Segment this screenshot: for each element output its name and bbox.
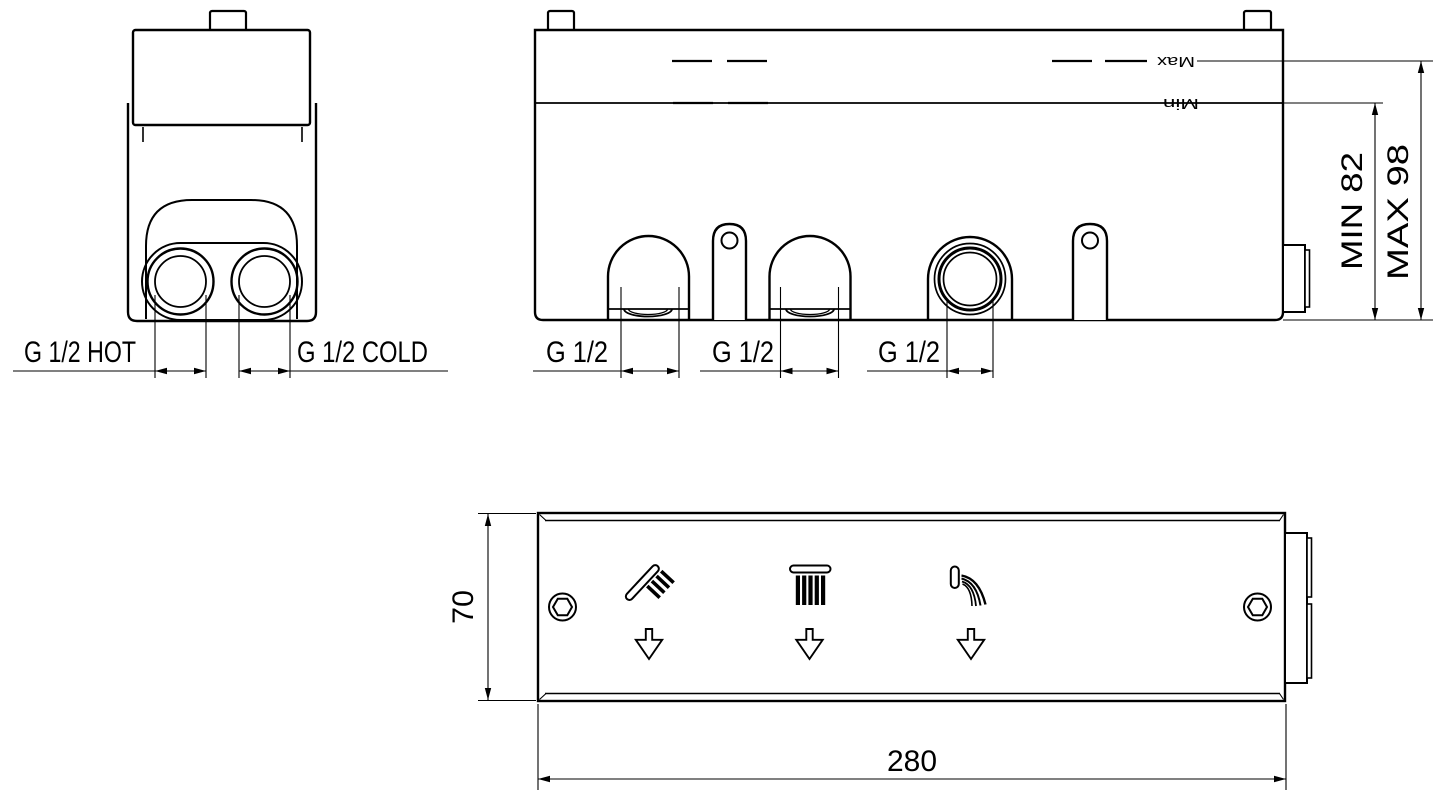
- hot-port-outer-circle: [148, 249, 214, 315]
- port3-label: G 1/2: [878, 336, 940, 369]
- arrowhead: [1372, 103, 1378, 115]
- arrowhead: [1274, 776, 1286, 782]
- arrowhead: [1372, 308, 1378, 320]
- height-dimension-lines: [478, 514, 536, 701]
- port2-label: G 1/2: [712, 336, 774, 369]
- arrowhead: [667, 368, 679, 374]
- arrowhead: [278, 368, 290, 374]
- side-connector-lip: [1305, 250, 1310, 307]
- panel-width-label: 280: [887, 745, 937, 778]
- side-connector: [1283, 245, 1305, 312]
- arrowhead: [538, 776, 550, 782]
- side-view-port-boss: [142, 243, 302, 320]
- arrowhead: [781, 368, 793, 374]
- min-depth-label: MIN 82: [1336, 152, 1369, 270]
- arrowhead: [621, 368, 633, 374]
- arrowhead: [194, 368, 206, 374]
- arrowhead: [239, 368, 251, 374]
- rain-shower-icon: [790, 566, 831, 606]
- mounting-tab-2: [1073, 224, 1107, 320]
- spout-body: [951, 567, 959, 589]
- side-view: G 1/2 HOT G 1/2 COLD: [13, 11, 448, 378]
- drawing-canvas: G 1/2 HOT G 1/2 COLD Max Min: [0, 0, 1445, 800]
- panel-face: [538, 513, 1285, 701]
- port1-label: G 1/2: [546, 336, 608, 369]
- arrowhead: [981, 368, 993, 374]
- max-depth-label: MAX 98: [1382, 144, 1415, 280]
- arrowhead: [827, 368, 839, 374]
- arrowhead: [155, 368, 167, 374]
- hot-port-label: G 1/2 HOT: [24, 336, 136, 369]
- cold-port-label: G 1/2 COLD: [297, 336, 428, 369]
- rain-shower-head: [790, 566, 831, 573]
- arrowhead: [1418, 61, 1424, 73]
- arrowhead: [485, 514, 491, 526]
- panel-side-connector: [1285, 533, 1307, 683]
- cold-port-inner-circle: [239, 256, 290, 307]
- front-view: Max Min MIN 82 MAX 98: [533, 11, 1433, 378]
- panel-view: 70 280: [447, 513, 1312, 790]
- max-marker-text: Max: [1156, 53, 1195, 70]
- mounting-tab-1: [713, 224, 746, 320]
- panel-height-label: 70: [447, 590, 480, 624]
- cold-port-outer-circle: [232, 249, 298, 315]
- hot-port-inner-circle: [155, 256, 206, 307]
- panel-connector-lip-top: [1307, 538, 1312, 597]
- technical-drawing-page: G 1/2 HOT G 1/2 COLD Max Min: [0, 0, 1445, 800]
- arrowhead: [485, 688, 491, 700]
- side-view-cap: [133, 30, 310, 125]
- side-view-extension-lines: [155, 295, 290, 378]
- arrowhead: [1418, 308, 1424, 320]
- min-marker-text: Min: [1163, 95, 1199, 112]
- front-view-body: [535, 30, 1283, 320]
- side-view-inner-wall-stubs: [143, 127, 302, 142]
- panel-connector-lip-bottom: [1307, 604, 1312, 678]
- arrowhead: [947, 368, 959, 374]
